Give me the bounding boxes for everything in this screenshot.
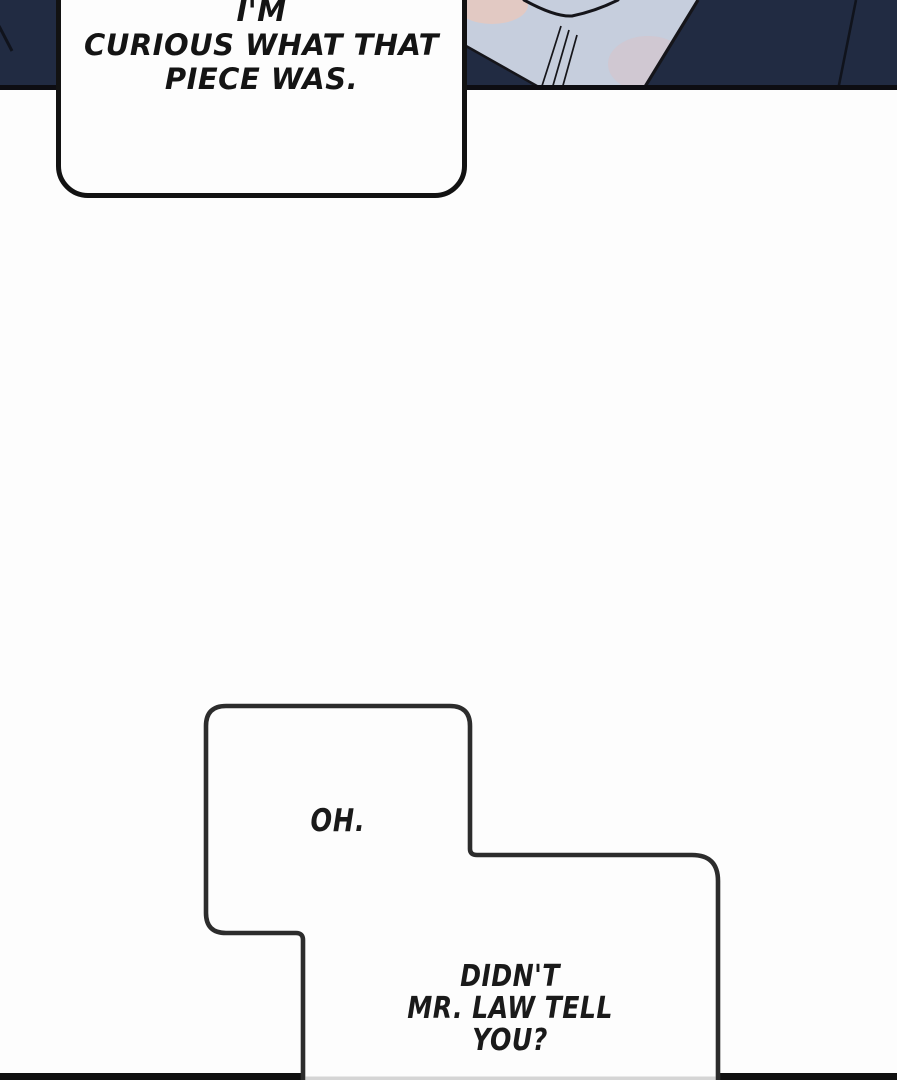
bubble-bottom-shadow — [306, 1077, 716, 1080]
speech-text-curious: I'M CURIOUS WHAT THAT PIECE WAS. — [56, 0, 467, 96]
speech-text-mr-law: DIDN'T MR. LAW TELL YOU? — [335, 961, 684, 1057]
speech-text-oh: OH. — [230, 803, 446, 839]
